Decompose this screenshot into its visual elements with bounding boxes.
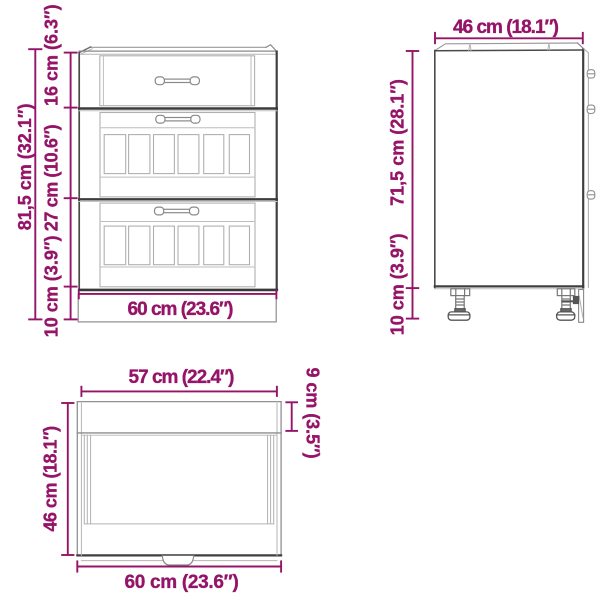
svg-text:60 cm (23.6″): 60 cm (23.6″) (128, 299, 234, 320)
svg-text:46 cm (18.1″): 46 cm (18.1″) (41, 426, 61, 532)
svg-text:46 cm (18.1″): 46 cm (18.1″) (453, 17, 559, 38)
svg-text:71,5 cm (28.1″): 71,5 cm (28.1″) (388, 79, 408, 206)
svg-text:60 cm (23.6″): 60 cm (23.6″) (125, 572, 239, 593)
svg-text:27 cm (10.6″): 27 cm (10.6″) (41, 124, 61, 231)
svg-text:57 cm (22.4″): 57 cm (22.4″) (129, 367, 235, 388)
svg-text:9 cm (3.5″): 9 cm (3.5″) (303, 367, 323, 458)
svg-text:81,5 cm (32.1″): 81,5 cm (32.1″) (15, 104, 35, 231)
svg-text:10 cm (3.9″): 10 cm (3.9″) (41, 236, 61, 338)
svg-text:10 cm (3.9″): 10 cm (3.9″) (388, 234, 408, 336)
svg-text:16 cm (6.3″): 16 cm (6.3″) (41, 4, 61, 106)
